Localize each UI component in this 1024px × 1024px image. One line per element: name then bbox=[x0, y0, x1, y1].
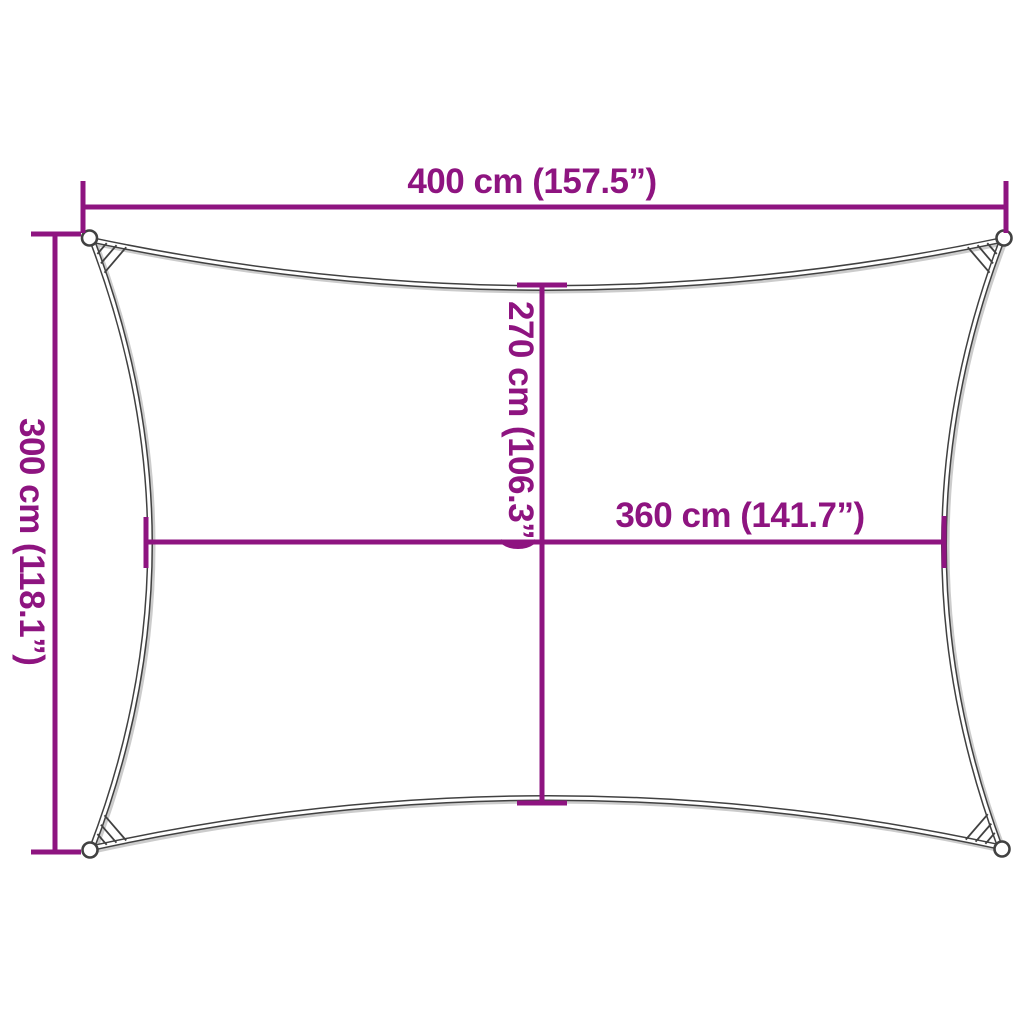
stitch-line bbox=[966, 814, 988, 839]
shade-sail-dimension-diagram: 400 cm (157.5”) 300 cm (118.1”) 270 cm (… bbox=[0, 0, 1024, 1024]
shade-sail-outline bbox=[92, 240, 1004, 850]
sail-edge-shadow bbox=[94, 242, 1004, 850]
stitch-line bbox=[105, 247, 127, 273]
stitch-line bbox=[968, 247, 990, 273]
corner-ring-bottom-left bbox=[83, 843, 98, 858]
height-dimension-label: 300 cm (118.1”) bbox=[13, 418, 50, 665]
stitch-line bbox=[105, 815, 127, 840]
inner-width-dimension-label: 360 cm (141.7”) bbox=[615, 497, 864, 534]
width-dimension-label: 400 cm (157.5”) bbox=[407, 163, 656, 200]
corner-ring-bottom-right bbox=[995, 842, 1010, 857]
inner-height-dimension-label: 270 cm (106.3”) bbox=[502, 301, 539, 550]
